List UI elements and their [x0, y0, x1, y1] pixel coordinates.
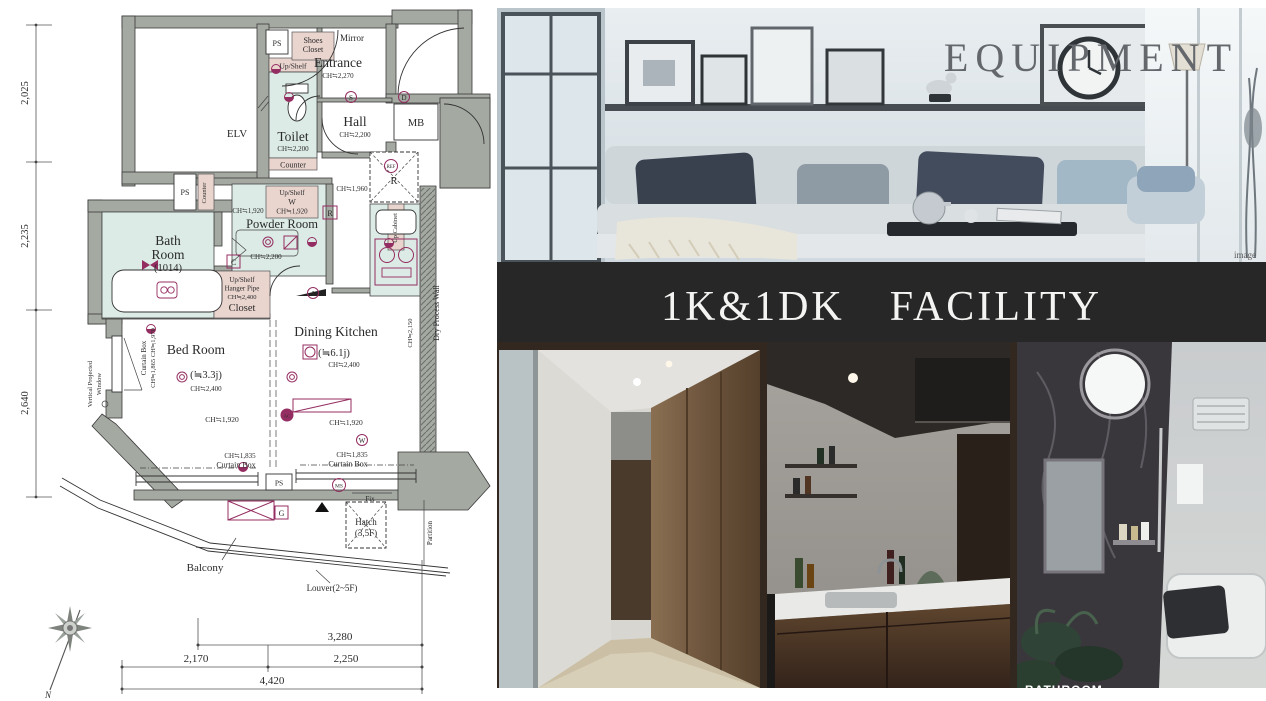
svg-text:(1014): (1014) — [154, 263, 182, 274]
kitchen-photo — [767, 342, 1010, 688]
svg-text:Curtain Box: Curtain Box — [328, 460, 367, 469]
svg-text:Window: Window — [96, 373, 103, 395]
svg-text:D: D — [401, 94, 406, 102]
svg-text:(3,5F): (3,5F) — [355, 528, 377, 538]
bay-window — [112, 336, 122, 392]
image-caption: image — [1234, 250, 1256, 260]
photo-gallery: BATHROOM — [497, 342, 1266, 688]
svg-text:Up/Shelf: Up/Shelf — [279, 189, 305, 197]
svg-text:Up Cabinet: Up Cabinet — [392, 213, 399, 243]
svg-text:C: C — [231, 258, 236, 267]
svg-text:CH≒2,200: CH≒2,200 — [277, 145, 309, 153]
downlight — [848, 373, 858, 383]
svg-text:CH≒1,865 CH≒1,970: CH≒1,865 CH≒1,970 — [150, 328, 157, 388]
svg-text:CH≒1,835: CH≒1,835 — [224, 452, 256, 460]
svg-text:MS: MS — [335, 484, 343, 490]
sink — [825, 592, 897, 608]
svg-text:MB: MB — [408, 118, 424, 129]
svg-text:CH≒2,400: CH≒2,400 — [190, 385, 222, 393]
svg-text:Curtain Box: Curtain Box — [140, 340, 148, 375]
svg-text:Counter: Counter — [280, 161, 306, 170]
svg-text:Dining Kitchen: Dining Kitchen — [294, 324, 378, 339]
svg-text:(≒3.3j): (≒3.3j) — [190, 370, 222, 381]
svg-text:Closet: Closet — [303, 45, 324, 54]
hanging-towel — [1177, 464, 1203, 504]
svg-text:Up/Shelf: Up/Shelf — [279, 62, 307, 71]
hero-photo: EQUIPMENT image — [497, 8, 1266, 262]
svg-text:S: S — [349, 94, 353, 102]
banner-title: 1K&1DK FACILITY — [661, 272, 1102, 333]
svg-text:W: W — [288, 198, 296, 207]
svg-text:PS: PS — [181, 188, 190, 197]
end-door — [611, 460, 651, 620]
svg-text:Up/Shelf: Up/Shelf — [229, 276, 255, 284]
svg-text:CH≒2,150: CH≒2,150 — [407, 318, 414, 347]
round-light — [1085, 354, 1145, 414]
armchair — [1127, 166, 1205, 224]
svg-text:CH≒1,835: CH≒1,835 — [336, 451, 368, 459]
svg-text:G: G — [279, 509, 285, 518]
svg-text:R: R — [390, 176, 397, 187]
svg-text:Hanger Pipe: Hanger Pipe — [225, 285, 260, 293]
svg-text:Powder Room: Powder Room — [246, 217, 318, 231]
svg-text:4,420: 4,420 — [260, 675, 285, 687]
svg-text:Entrance: Entrance — [314, 55, 362, 70]
svg-text:R: R — [327, 209, 333, 218]
svg-text:REF: REF — [387, 165, 396, 170]
towel — [1163, 585, 1230, 639]
svg-text:CH≒2,200: CH≒2,200 — [250, 253, 282, 261]
svg-text:CH≒2,400: CH≒2,400 — [227, 294, 256, 301]
svg-text:2,170: 2,170 — [184, 653, 209, 665]
svg-text:W: W — [359, 437, 366, 445]
facility-banner: 1K&1DK FACILITY — [497, 262, 1266, 342]
svg-text:CH≒1,960: CH≒1,960 — [336, 185, 368, 193]
equipment-title: EQUIPMENT — [944, 34, 1238, 81]
svg-text:Mirror: Mirror — [340, 33, 364, 43]
svg-text:2,025: 2,025 — [20, 81, 31, 105]
svg-text:CH≒2,200: CH≒2,200 — [339, 131, 371, 139]
svg-text:Toilet: Toilet — [277, 129, 309, 144]
brochure-page: S D I W REF R C G AC MS — [0, 0, 1266, 701]
svg-text:Closet: Closet — [229, 303, 256, 314]
north-mark — [315, 502, 329, 512]
hallway-photo — [499, 350, 760, 688]
svg-text:CH≒1,920: CH≒1,920 — [205, 415, 239, 424]
svg-text:Partition: Partition — [426, 520, 434, 545]
svg-text:CH≒1,920: CH≒1,920 — [329, 418, 363, 427]
svg-text:2,235: 2,235 — [20, 224, 31, 248]
downlight — [633, 378, 641, 386]
svg-text:Fix: Fix — [365, 495, 375, 503]
svg-text:Hall: Hall — [343, 114, 366, 129]
mirror — [499, 350, 537, 688]
bathroom-photo: BATHROOM — [1017, 342, 1266, 688]
svg-text:N: N — [44, 690, 52, 700]
downlight — [666, 361, 673, 368]
svg-text:ELV: ELV — [227, 128, 247, 140]
wood-wall — [651, 350, 760, 688]
compass: N — [44, 606, 92, 700]
svg-text:CH≒2,270: CH≒2,270 — [322, 72, 354, 80]
floor-plan: S D I W REF R C G AC MS — [0, 0, 497, 701]
svg-text:(≒6.1j): (≒6.1j) — [318, 348, 350, 359]
svg-text:2,640: 2,640 — [20, 391, 31, 415]
svg-text:Shoes: Shoes — [303, 36, 322, 45]
svg-text:Room: Room — [151, 247, 185, 262]
window-left — [497, 8, 605, 262]
svg-text:CH≒2,400: CH≒2,400 — [328, 361, 360, 369]
svg-text:Louver(2~5F): Louver(2~5F) — [307, 583, 358, 593]
svg-text:Bed Room: Bed Room — [167, 342, 226, 357]
range-hood — [915, 358, 1010, 422]
tall-cabinet — [957, 434, 1010, 594]
svg-text:Hatch: Hatch — [355, 517, 377, 527]
svg-text:PS: PS — [273, 39, 282, 48]
svg-text:2,250: 2,250 — [334, 653, 359, 665]
svg-text:Vertical Projected: Vertical Projected — [87, 360, 94, 407]
bathroom-caption: BATHROOM — [1025, 683, 1103, 688]
svg-text:Balcony: Balcony — [187, 562, 224, 574]
svg-text:CH≒1,920: CH≒1,920 — [276, 208, 308, 216]
svg-text:CH≒1,920: CH≒1,920 — [232, 207, 264, 215]
svg-text:AC: AC — [284, 413, 290, 418]
svg-text:3,280: 3,280 — [328, 631, 353, 643]
svg-text:Counter: Counter — [201, 182, 208, 204]
svg-text:Bath: Bath — [155, 233, 181, 248]
mirror — [1045, 460, 1103, 572]
shower-bar — [1159, 428, 1161, 552]
svg-text:Curtain Box: Curtain Box — [216, 461, 255, 470]
svg-text:PS: PS — [275, 479, 283, 488]
svg-text:Dry Process Wall: Dry Process Wall — [432, 284, 441, 340]
